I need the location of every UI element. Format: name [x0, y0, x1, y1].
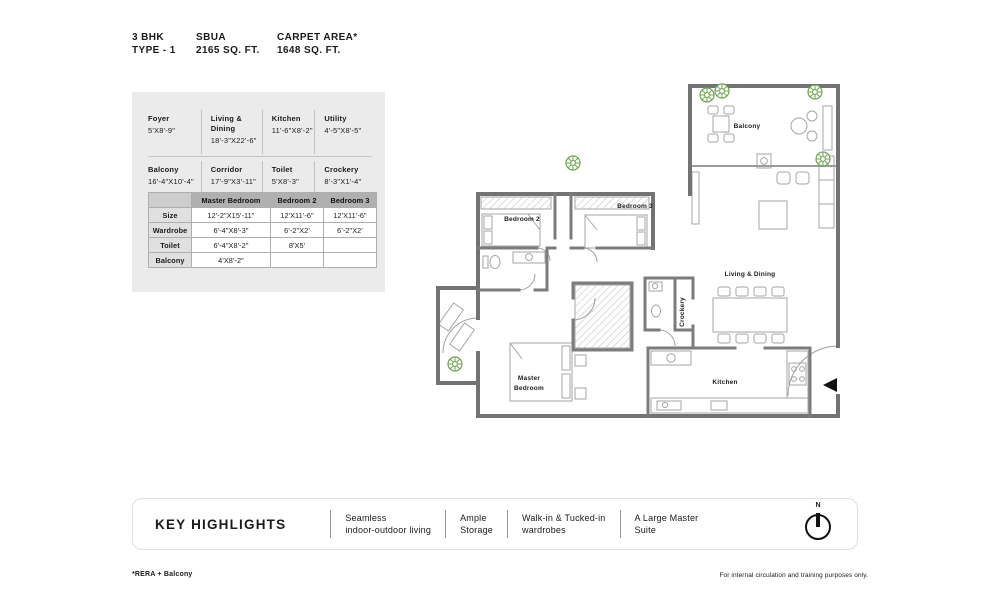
balcony-bedroom2 [271, 253, 324, 268]
toilet-bedroom2: 8'X5' [271, 238, 324, 253]
label-crockery: Crockery [679, 297, 686, 327]
dim-toilet: Toilet 5'X8'-3" [262, 161, 315, 195]
dim-living-dining: Living & Dining 18'-3"X22'-6" [201, 110, 262, 154]
col-bedroom-3: Bedroom 3 [324, 193, 377, 208]
table-row: Size 12'-2"X15'-11" 12'X11'-6" 12'X11'-6… [149, 208, 377, 223]
specs-panel: Foyer 5'X8'-9" Living & Dining 18'-3"X22… [132, 92, 385, 292]
size-master: 12'-2"X15'-11" [192, 208, 271, 223]
table-corner-cell [149, 193, 192, 208]
floor-plan: Balcony Living & Dining Bedroom 2 Bedroo… [425, 68, 845, 430]
north-compass-icon: N [805, 514, 831, 540]
entry-arrow-icon [823, 378, 837, 392]
col-bedroom-2: Bedroom 2 [271, 193, 324, 208]
row-label-toilet: Toilet [149, 238, 192, 253]
dim-corridor: Corridor 17'-9"X3'-11" [201, 161, 262, 195]
label-kitchen: Kitchen [712, 379, 737, 386]
room-dimensions: Foyer 5'X8'-9" Living & Dining 18'-3"X22… [148, 110, 372, 195]
table-row: Balcony 4'X8'-2" [149, 253, 377, 268]
furniture [439, 106, 834, 413]
outer-walls [438, 86, 838, 416]
highlight-item: Walk-in & Tucked-in wardrobes [508, 512, 620, 536]
dims-divider [148, 156, 372, 157]
row-label-balcony: Balcony [149, 253, 192, 268]
sbua-value: 2165 SQ. FT. [196, 44, 277, 57]
dim-foyer: Foyer 5'X8'-9" [148, 110, 201, 154]
bedroom-table: Master Bedroom Bedroom 2 Bedroom 3 Size … [148, 192, 377, 268]
unit-bhk: 3 BHK [132, 31, 196, 44]
dim-balcony: Balcony 16'-4"X10'-4" [148, 161, 201, 195]
highlight-item: A Large Master Suite [621, 512, 713, 536]
disclaimer: For internal circulation and training pu… [719, 572, 868, 579]
carpet-label: CARPET AREA* [277, 31, 358, 44]
key-highlights-title: KEY HIGHLIGHTS [155, 517, 286, 532]
table-row: Toilet 6'-4"X8'-2" 8'X5' [149, 238, 377, 253]
dim-utility: Utility 4'-5"X8'-5" [314, 110, 372, 154]
carpet-value: 1648 SQ. FT. [277, 44, 358, 57]
dim-crockery: Crockery 8'-3"X1'-4" [314, 161, 372, 195]
size-bedroom3: 12'X11'-6" [324, 208, 377, 223]
highlight-item: Ample Storage [446, 512, 507, 536]
toilet-master: 6'-4"X8'-2" [192, 238, 271, 253]
toilet-bedroom3 [324, 238, 377, 253]
label-bedroom-3: Bedroom 3 [617, 203, 653, 210]
table-row: Wardrobe 6'-4"X8'-3" 6'-2"X2' 6'-2"X2' [149, 223, 377, 238]
label-balcony: Balcony [734, 123, 761, 130]
footnote-rera: *RERA + Balcony [132, 571, 193, 578]
unit-type: TYPE - 1 [132, 44, 196, 57]
balcony-master: 4'X8'-2" [192, 253, 271, 268]
size-bedroom2: 12'X11'-6" [271, 208, 324, 223]
col-master-bedroom: Master Bedroom [192, 193, 271, 208]
dim-kitchen: Kitchen 11'-6"X8'-2" [262, 110, 315, 154]
label-bedroom-2: Bedroom 2 [504, 216, 540, 223]
highlight-item: Seamless indoor-outdoor living [331, 512, 445, 536]
wardrobe-bedroom2: 6'-2"X2' [271, 223, 324, 238]
compass-n-label: N [815, 502, 820, 509]
sbua-label: SBUA [196, 31, 277, 44]
label-master-line2: Bedroom [514, 385, 544, 392]
label-master-line1: Master [518, 375, 540, 382]
wardrobe-master: 6'-4"X8'-3" [192, 223, 271, 238]
unit-header: 3 BHK TYPE - 1 SBUA 2165 SQ. FT. CARPET … [132, 31, 358, 57]
row-label-size: Size [149, 208, 192, 223]
balcony-bedroom3 [324, 253, 377, 268]
label-living-dining: Living & Dining [725, 271, 776, 278]
table-header-row: Master Bedroom Bedroom 2 Bedroom 3 [149, 193, 377, 208]
wardrobe-bedroom3: 6'-2"X2' [324, 223, 377, 238]
row-label-wardrobe: Wardrobe [149, 223, 192, 238]
key-highlights-bar: KEY HIGHLIGHTS Seamless indoor-outdoor l… [132, 498, 858, 550]
